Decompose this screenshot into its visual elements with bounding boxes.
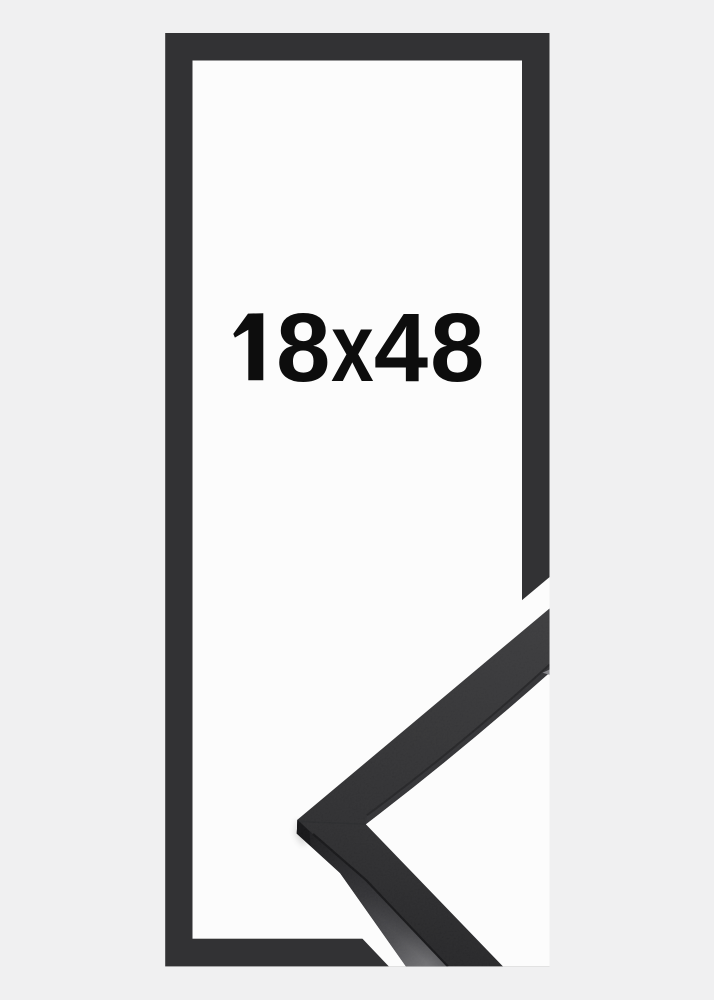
- svg-text:8: 8: [430, 293, 484, 402]
- svg-text:x: x: [331, 293, 374, 402]
- svg-text:8: 8: [276, 293, 330, 402]
- svg-text:4: 4: [374, 293, 428, 402]
